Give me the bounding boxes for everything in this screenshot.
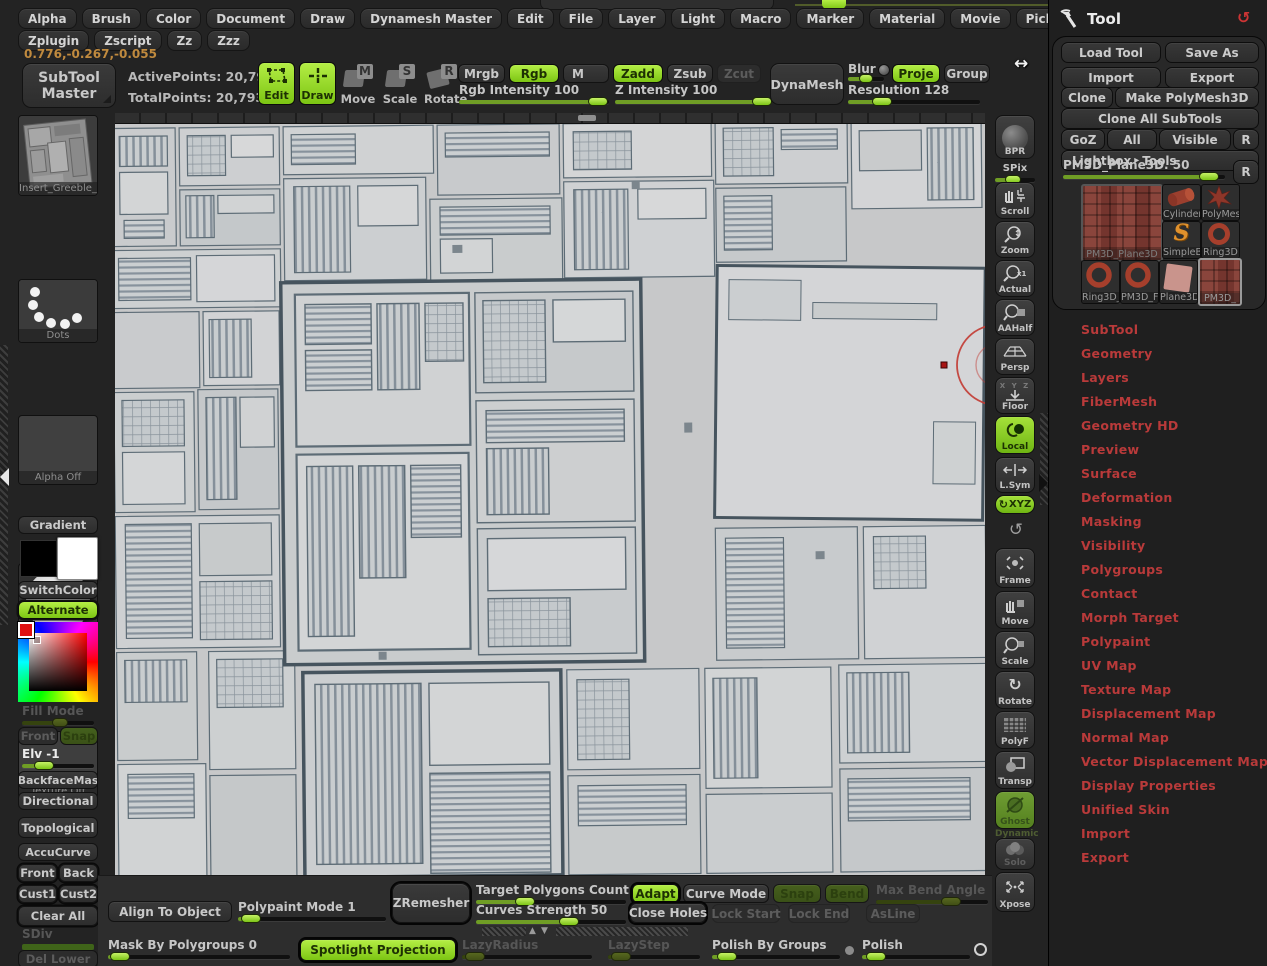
polyframe-label: PolyF <box>1001 737 1029 747</box>
polish-by-groups-label: Polish By Groups <box>712 939 840 952</box>
color-picker-square[interactable] <box>29 633 87 691</box>
frame-button[interactable]: Frame <box>995 548 1035 588</box>
gradient-button[interactable]: Gradient <box>18 516 98 534</box>
clear-all-button[interactable]: Clear All <box>18 906 98 926</box>
close-holes-button[interactable]: Close Holes <box>630 903 706 923</box>
rgb-button[interactable]: Rgb <box>509 64 559 83</box>
menu-item[interactable]: Color <box>146 8 201 29</box>
z-intensity-slider[interactable]: Z Intensity 100 <box>615 84 767 104</box>
menu-item[interactable]: Dynamesh Master <box>360 8 502 29</box>
cursor-coordinates: 0.776,-0.267,-0.055 <box>24 47 157 61</box>
current-tool-label: PM3D_Plane3D. 50 <box>1063 159 1225 172</box>
tool-section-item[interactable]: Displacement Map <box>1049 706 1267 721</box>
sdiv-slider[interactable]: SDiv <box>22 928 94 950</box>
frame-icon <box>996 549 1034 576</box>
shelf-divider-hatch-left <box>482 927 526 936</box>
gxyz-label: XYZ <box>1009 499 1031 510</box>
mrgb-button[interactable]: Mrgb <box>458 64 505 83</box>
subtool-master-line2: Master <box>42 86 97 102</box>
polish-label: Polish <box>862 939 970 952</box>
simplebrush-s-icon: S <box>1163 221 1200 246</box>
group-button[interactable]: Group <box>944 64 990 83</box>
ring3d2-thumb-label: Ring3D_ <box>1082 292 1119 303</box>
scale-magnifier-icon <box>996 632 1034 657</box>
import-button[interactable]: Import <box>1061 67 1161 88</box>
clone-all-subtools-button[interactable]: Clone All SubTools <box>1061 108 1259 129</box>
right-tray-edge[interactable] <box>1040 413 1048 505</box>
move-gizmo-icon: M <box>343 64 373 88</box>
spotlight-projection-button[interactable]: Spotlight Projection <box>300 939 456 961</box>
tool-thumb-plane3d[interactable]: Plane3D <box>1159 260 1198 304</box>
alternate-button[interactable]: Alternate <box>18 601 98 619</box>
tool-thumb-pm3d-ring[interactable]: PM3D_F <box>1120 260 1159 304</box>
bpr-button[interactable]: BPR <box>995 115 1035 159</box>
project-button[interactable]: Proje <box>892 64 940 83</box>
draw-icon <box>307 66 329 86</box>
subtool-master-button[interactable]: SubTool Master <box>22 63 116 108</box>
load-tool-button[interactable]: Load Tool <box>1061 42 1161 63</box>
ring-icon <box>1082 261 1117 291</box>
lazy-radius-label: LazyRadius <box>462 939 592 952</box>
polish-slider[interactable]: Polish <box>862 939 970 959</box>
color-picker[interactable] <box>18 622 98 702</box>
color-swatches <box>18 537 98 579</box>
cylinder-thumb-label: Cylinder: <box>1163 209 1200 220</box>
scale-label: Scale <box>383 92 418 106</box>
local-label: Local <box>1002 442 1028 452</box>
ghost-icon <box>996 792 1034 817</box>
color-picker-cursor <box>33 636 41 644</box>
alpha-thumbnail[interactable]: Alpha Off <box>18 415 98 485</box>
zoom-label: Zoom <box>1001 246 1029 256</box>
tool-section-item[interactable]: Display Properties <box>1049 778 1267 793</box>
make-polymesh3d-button[interactable]: Make PolyMesh3D <box>1115 87 1259 108</box>
tool-section-item[interactable]: Masking <box>1049 514 1267 529</box>
tool-section-item[interactable]: Morph Target <box>1049 610 1267 625</box>
rgb-intensity-slider[interactable]: Rgb Intensity 100 <box>459 84 609 104</box>
tool-section-item[interactable]: Polygroups <box>1049 562 1267 577</box>
asline-button[interactable]: AsLine <box>866 904 920 923</box>
tool-thumb-ring3d[interactable]: Ring3D <box>1201 221 1240 259</box>
svg-text:x1: x1 <box>1017 270 1027 278</box>
ring-icon <box>1121 261 1156 291</box>
rgb-intensity-label: Rgb Intensity 100 <box>459 84 609 97</box>
ghost-button[interactable]: Ghost <box>995 791 1035 829</box>
scroll-button[interactable]: Scroll <box>995 182 1035 219</box>
scroll-label: Scroll <box>1001 207 1030 217</box>
edit-button[interactable]: Edit <box>258 62 295 105</box>
current-brush-thumbnail[interactable]: Insert_Greeble_ <box>18 115 98 196</box>
zoom-magnifier-icon <box>996 222 1034 246</box>
actual-size-icon: x1 <box>996 261 1034 285</box>
stroke-thumbnail[interactable]: Dots <box>18 279 98 343</box>
greeble-model <box>115 124 985 875</box>
xpose-button[interactable]: Xpose <box>995 872 1035 912</box>
restore-configuration-icon[interactable]: ↺ <box>1237 8 1250 27</box>
plane3d-thumb-label: Plane3D <box>1160 292 1197 303</box>
target-polygons-slider[interactable]: Target Polygons Count 5 <box>476 884 626 904</box>
menu-item[interactable]: Zz <box>167 30 203 51</box>
shelf-divider-hatch-right <box>556 927 688 936</box>
subtool-master-line1: SubTool <box>38 70 100 86</box>
pm3df-thumb-label: PM3D_F <box>1121 292 1158 303</box>
tool-thumb-simplebrush[interactable]: S SimpleBr <box>1162 221 1201 259</box>
lock-start-button[interactable]: Lock Start <box>712 904 780 923</box>
secondary-color-swatch[interactable] <box>20 540 57 577</box>
tool-section-item[interactable]: Visibility <box>1049 538 1267 553</box>
m-button[interactable]: M <box>563 64 609 83</box>
left-tray-edge[interactable] <box>0 345 8 625</box>
topological-button[interactable]: Topological <box>18 817 98 838</box>
current-tool-thumb-label: PM3D_Plane3D <box>1083 249 1161 260</box>
rotate-button[interactable]: R Rotate <box>424 64 460 106</box>
draw-button[interactable]: Draw <box>299 62 336 105</box>
floor-button[interactable]: X Y Z Floor <box>995 377 1035 414</box>
floor-label: Floor <box>1002 402 1028 412</box>
zcut-button[interactable]: Zcut <box>717 64 761 83</box>
polish-groups-mode-dot[interactable] <box>845 946 854 955</box>
simplebr-thumb-label: SimpleBr <box>1163 247 1200 258</box>
tool-section-item[interactable]: Normal Map <box>1049 730 1267 745</box>
sculpt-canvas[interactable] <box>115 124 985 875</box>
primary-color-swatch[interactable] <box>57 537 98 580</box>
scale-gizmo-icon: S <box>385 64 415 88</box>
gxyz-button[interactable]: ↻ XYZ <box>995 495 1035 514</box>
zremesher-button[interactable]: ZRemesher <box>392 883 470 923</box>
persp-label: Persp <box>1001 363 1030 373</box>
tool-section-item[interactable]: Geometry HD <box>1049 418 1267 433</box>
snap-curve-button[interactable]: Snap <box>773 884 821 903</box>
pm3d-thumb-label: PM3D_ <box>1200 293 1240 304</box>
tool-thumb-pm3d-selected[interactable]: PM3D_ <box>1198 258 1242 306</box>
lazy-step-slider[interactable]: LazyStep <box>608 939 700 959</box>
menu-item[interactable]: Alpha <box>18 8 77 29</box>
corner-fold-icon <box>103 95 111 103</box>
directional-button[interactable]: Directional <box>18 792 98 810</box>
tool-section-item[interactable]: Contact <box>1049 586 1267 601</box>
menu-item[interactable]: Material <box>869 8 945 29</box>
backface-mask-button[interactable]: BackfaceMas <box>18 771 98 789</box>
menu-item[interactable]: Zzz <box>207 30 250 51</box>
export-button[interactable]: Export <box>1165 67 1259 88</box>
spin-icon-button[interactable]: ↺ <box>1003 520 1029 544</box>
dynamesh-button[interactable]: DynaMesh <box>770 63 844 105</box>
target-polygons-label: Target Polygons Count 5 <box>476 884 626 897</box>
persp-button[interactable]: Persp <box>995 338 1035 375</box>
z-intensity-label: Z Intensity 100 <box>615 84 767 97</box>
stroke-thumbnail-label: Dots <box>19 329 97 342</box>
xpose-arrows-icon <box>996 873 1034 900</box>
goz-r-button[interactable]: R <box>1233 129 1259 150</box>
brush-thumbnail-label: Insert_Greeble_ <box>19 182 97 195</box>
current-tool-slider[interactable]: PM3D_Plane3D. 50 <box>1063 159 1225 179</box>
zsub-button[interactable]: Zsub <box>667 64 713 83</box>
scroll-hand-icon <box>996 183 1034 207</box>
lazy-radius-slider[interactable]: LazyRadius <box>462 939 592 959</box>
accucurve-button[interactable]: AccuCurve <box>18 843 98 861</box>
lsym-label: L.Sym <box>1000 481 1031 491</box>
actual-label: Actual <box>999 285 1031 295</box>
actual-button[interactable]: x1 Actual <box>995 260 1035 297</box>
front-toggle[interactable]: Front <box>18 727 58 745</box>
save-as-button[interactable]: Save As <box>1165 42 1259 63</box>
move-hand-icon <box>996 592 1034 617</box>
selected-color-marker <box>18 622 34 638</box>
move-view-label: Move <box>1001 617 1028 627</box>
mask-by-polygroups-label: Mask By Polygroups 0 <box>108 939 290 952</box>
zbrush-window: AlphaBrushColorDocumentDrawDynamesh Mast… <box>0 0 1267 966</box>
star-icon <box>1202 185 1237 209</box>
tool-section-item[interactable]: Import <box>1049 826 1267 841</box>
polymes-thumb-label: PolyMes <box>1202 209 1239 220</box>
adapt-button[interactable]: Adapt <box>632 884 679 903</box>
transp-button[interactable]: Transp <box>995 751 1035 789</box>
cylinder-icon <box>1163 185 1198 209</box>
menu-item[interactable]: Draw <box>300 8 355 29</box>
rotate-view-button[interactable]: ↻ Rotate <box>995 671 1035 709</box>
zadd-button[interactable]: Zadd <box>613 64 663 83</box>
menu-item[interactable]: Macro <box>730 8 791 29</box>
local-pivot-icon <box>996 417 1034 442</box>
tool-section-item[interactable]: Texture Map <box>1049 682 1267 697</box>
tool-section-item[interactable]: Vector Displacement Map <box>1049 754 1267 769</box>
lazy-step-label: LazyStep <box>608 939 700 952</box>
mirror-symmetry-icon <box>996 458 1034 481</box>
tool-thumb-polymesh-star[interactable]: PolyMes <box>1201 184 1240 221</box>
edit-label: Edit <box>264 89 288 102</box>
tool-section-item[interactable]: Polypaint <box>1049 634 1267 649</box>
solo-button[interactable]: Solo <box>995 838 1035 870</box>
rotate-view-icon: ↻ <box>996 672 1034 697</box>
ring-icon <box>1202 222 1237 247</box>
polish-mode-ring[interactable] <box>974 943 987 956</box>
tool-hammer-icon <box>1057 8 1079 30</box>
tool-section-item[interactable]: Layers <box>1049 370 1267 385</box>
perspective-grid-icon <box>996 339 1034 363</box>
menu-item[interactable]: Movie <box>950 8 1010 29</box>
menu-item[interactable]: Marker <box>796 8 864 29</box>
tool-section-item[interactable]: Geometry <box>1049 346 1267 361</box>
tool-thumb-ring3d2[interactable]: Ring3D_ <box>1081 260 1120 304</box>
xpose-label: Xpose <box>999 900 1030 910</box>
lsym-button[interactable]: L.Sym <box>995 457 1035 493</box>
tool-r-button[interactable]: R <box>1233 160 1259 184</box>
transp-label: Transp <box>998 777 1032 787</box>
lock-end-button[interactable]: Lock End <box>788 904 850 923</box>
align-to-object-button[interactable]: Align To Object <box>108 901 232 922</box>
solo-label: Solo <box>1004 858 1026 868</box>
clone-button[interactable]: Clone <box>1061 87 1113 108</box>
menu-item[interactable]: Edit <box>507 8 554 29</box>
gyro-icon: ↻ <box>999 498 1008 511</box>
goz-all-button[interactable]: All <box>1107 129 1157 150</box>
move-button[interactable]: M Move <box>340 64 376 106</box>
tool-section-item[interactable]: Unified Skin <box>1049 802 1267 817</box>
tool-section-item[interactable]: SubTool <box>1049 322 1267 337</box>
transparency-icon <box>996 752 1034 777</box>
rotate-view-label: Rotate <box>998 697 1032 707</box>
snap-toggle[interactable]: Snap <box>60 727 98 745</box>
blur-slider[interactable] <box>848 74 884 81</box>
tool-section-item[interactable]: FiberMesh <box>1049 394 1267 409</box>
switchcolor-button[interactable]: SwitchColor <box>18 581 98 599</box>
curves-strength-slider[interactable]: Curves Strength 50 <box>476 904 626 924</box>
curves-strength-label: Curves Strength 50 <box>476 904 626 917</box>
move-label: Move <box>341 92 376 106</box>
polypaint-mode-slider[interactable]: Polypaint Mode 1 <box>238 901 386 921</box>
menu-item[interactable]: Layer <box>608 8 665 29</box>
tool-section-item[interactable]: Deformation <box>1049 490 1267 505</box>
plane-icon <box>1163 263 1192 292</box>
zoom-button[interactable]: Zoom <box>995 221 1035 258</box>
polypaint-mode-label: Polypaint Mode 1 <box>238 901 386 914</box>
floor-arrow-icon <box>996 390 1034 402</box>
aahalf-label: AAHalf <box>998 324 1033 334</box>
aahalf-icon <box>996 300 1034 324</box>
elv-slider[interactable]: Elv -1 <box>22 748 94 768</box>
menu-item[interactable]: File <box>559 8 604 29</box>
bend-button[interactable]: Bend <box>825 884 869 903</box>
tool-thumb-cylinder[interactable]: Cylinder: <box>1162 184 1201 221</box>
document-ruler-handle[interactable] <box>578 115 596 121</box>
cust1-button[interactable]: Cust1 <box>18 885 57 903</box>
goz-visible-button[interactable]: Visible <box>1159 129 1231 150</box>
cust2-button[interactable]: Cust2 <box>59 885 98 903</box>
polish-by-groups-slider[interactable]: Polish By Groups <box>712 939 840 959</box>
goz-button[interactable]: GoZ <box>1061 129 1105 150</box>
tool-section-item[interactable]: Surface <box>1049 466 1267 481</box>
local-button[interactable]: Local <box>995 416 1035 454</box>
mask-by-polygroups-slider[interactable]: Mask By Polygroups 0 <box>108 939 290 959</box>
wireframe-grid-icon <box>996 712 1034 737</box>
tool-section-item[interactable]: Preview <box>1049 442 1267 457</box>
current-tool-thumbnail[interactable]: PM3D_Plane3D <box>1081 184 1163 262</box>
aahalf-button[interactable]: AAHalf <box>995 299 1035 336</box>
active-points: ActivePoints: 20,793 <box>128 69 274 84</box>
draw-label: Draw <box>301 89 333 102</box>
tool-section-item[interactable]: UV Map <box>1049 658 1267 673</box>
frame-label: Frame <box>999 576 1031 586</box>
front-clip-button[interactable]: Front <box>18 864 57 882</box>
tool-section-item[interactable]: Export <box>1049 850 1267 865</box>
resolution-label: Resolution 128 <box>848 84 980 97</box>
spix-label: SPix <box>995 162 1035 175</box>
document-ruler[interactable] <box>115 113 985 124</box>
tool-panel-title: Tool <box>1087 10 1121 28</box>
sdiv-label: SDiv <box>22 928 94 941</box>
curve-mode-button[interactable]: Curve Mode <box>683 884 769 903</box>
alpha-thumbnail-label: Alpha Off <box>19 471 97 484</box>
max-bend-angle-label: Max Bend Angle <box>876 884 988 897</box>
back-clip-button[interactable]: Back <box>59 864 98 882</box>
scale-view-button[interactable]: Scale <box>995 631 1035 669</box>
resolution-slider[interactable]: Resolution 128 <box>848 84 980 104</box>
collapse-down-icon[interactable]: ▼ <box>541 926 548 936</box>
elv-label: Elv -1 <box>22 748 94 761</box>
move-view-button[interactable]: Move <box>995 591 1035 629</box>
scale-button[interactable]: S Scale <box>382 64 418 106</box>
collapse-up-icon[interactable]: ▲ <box>529 926 536 936</box>
scale-view-label: Scale <box>1001 657 1028 667</box>
resize-cursor-icon: ↔ <box>1014 54 1028 74</box>
floor-axes-label: X Y Z <box>1000 382 1030 390</box>
polyframe-button[interactable]: PolyF <box>995 711 1035 749</box>
ring3d-thumb-label: Ring3D <box>1202 247 1239 258</box>
menu-item[interactable]: Brush <box>82 8 141 29</box>
bpr-label: BPR <box>1005 147 1025 157</box>
fill-mode-slider[interactable]: Fill Mode <box>22 705 94 725</box>
max-bend-angle-slider[interactable]: Max Bend Angle <box>876 884 988 904</box>
solo-spheres-icon <box>996 839 1034 858</box>
del-lower-button[interactable]: Del Lower <box>18 950 98 966</box>
tool-palette: Tool ↺ Load Tool Save As Import Export C… <box>1048 0 1267 966</box>
menu-item[interactable]: Document <box>206 8 295 29</box>
rotate-gizmo-icon: R <box>427 64 457 88</box>
ghost-label: Ghost <box>1000 817 1030 827</box>
menu-item[interactable]: Light <box>671 8 726 29</box>
fill-mode-label: Fill Mode <box>22 705 94 718</box>
total-points: TotalPoints: 20,793 <box>128 90 264 105</box>
edit-icon <box>266 66 288 86</box>
spix-slider[interactable]: SPix <box>995 162 1035 182</box>
